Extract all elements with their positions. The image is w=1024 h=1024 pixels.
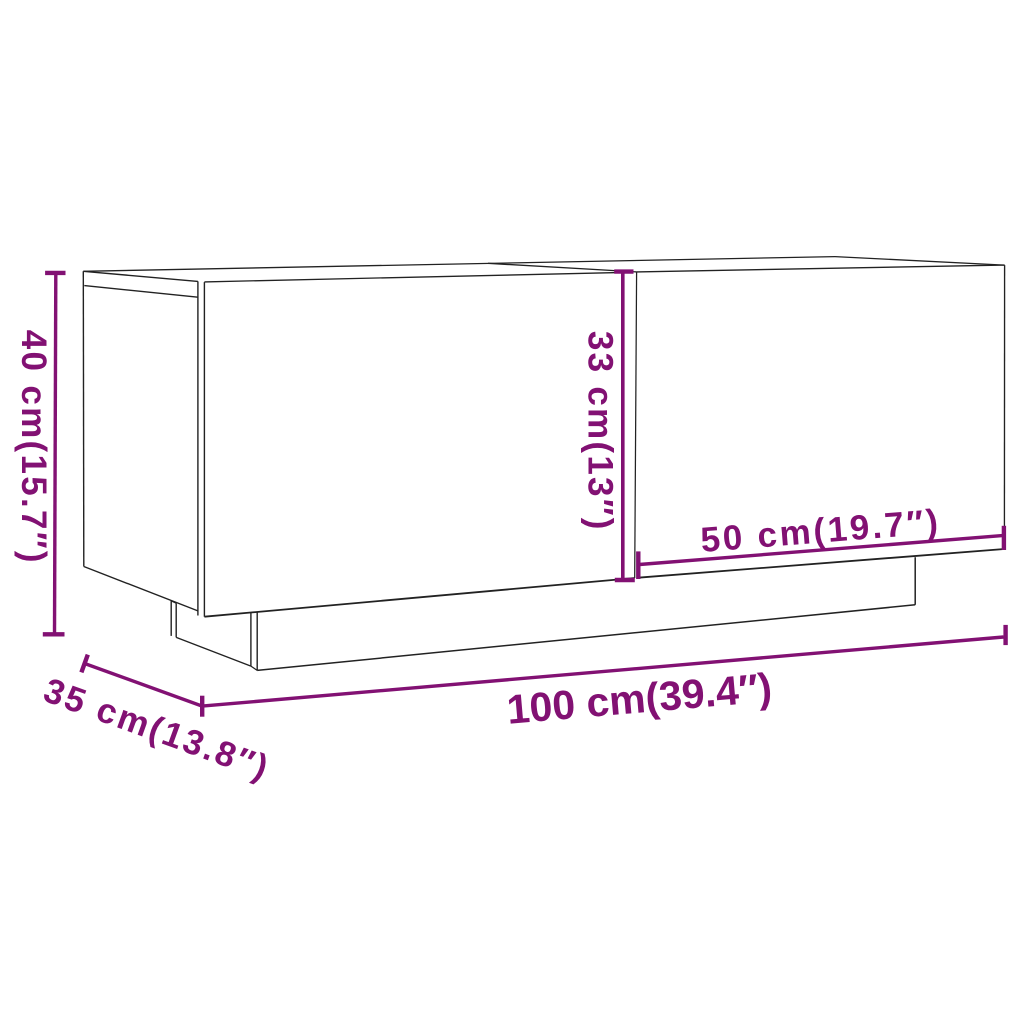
svg-text:40 cm(15.7″): 40 cm(15.7″) [14, 330, 53, 565]
svg-text:33 cm(13″): 33 cm(13″) [581, 331, 620, 532]
